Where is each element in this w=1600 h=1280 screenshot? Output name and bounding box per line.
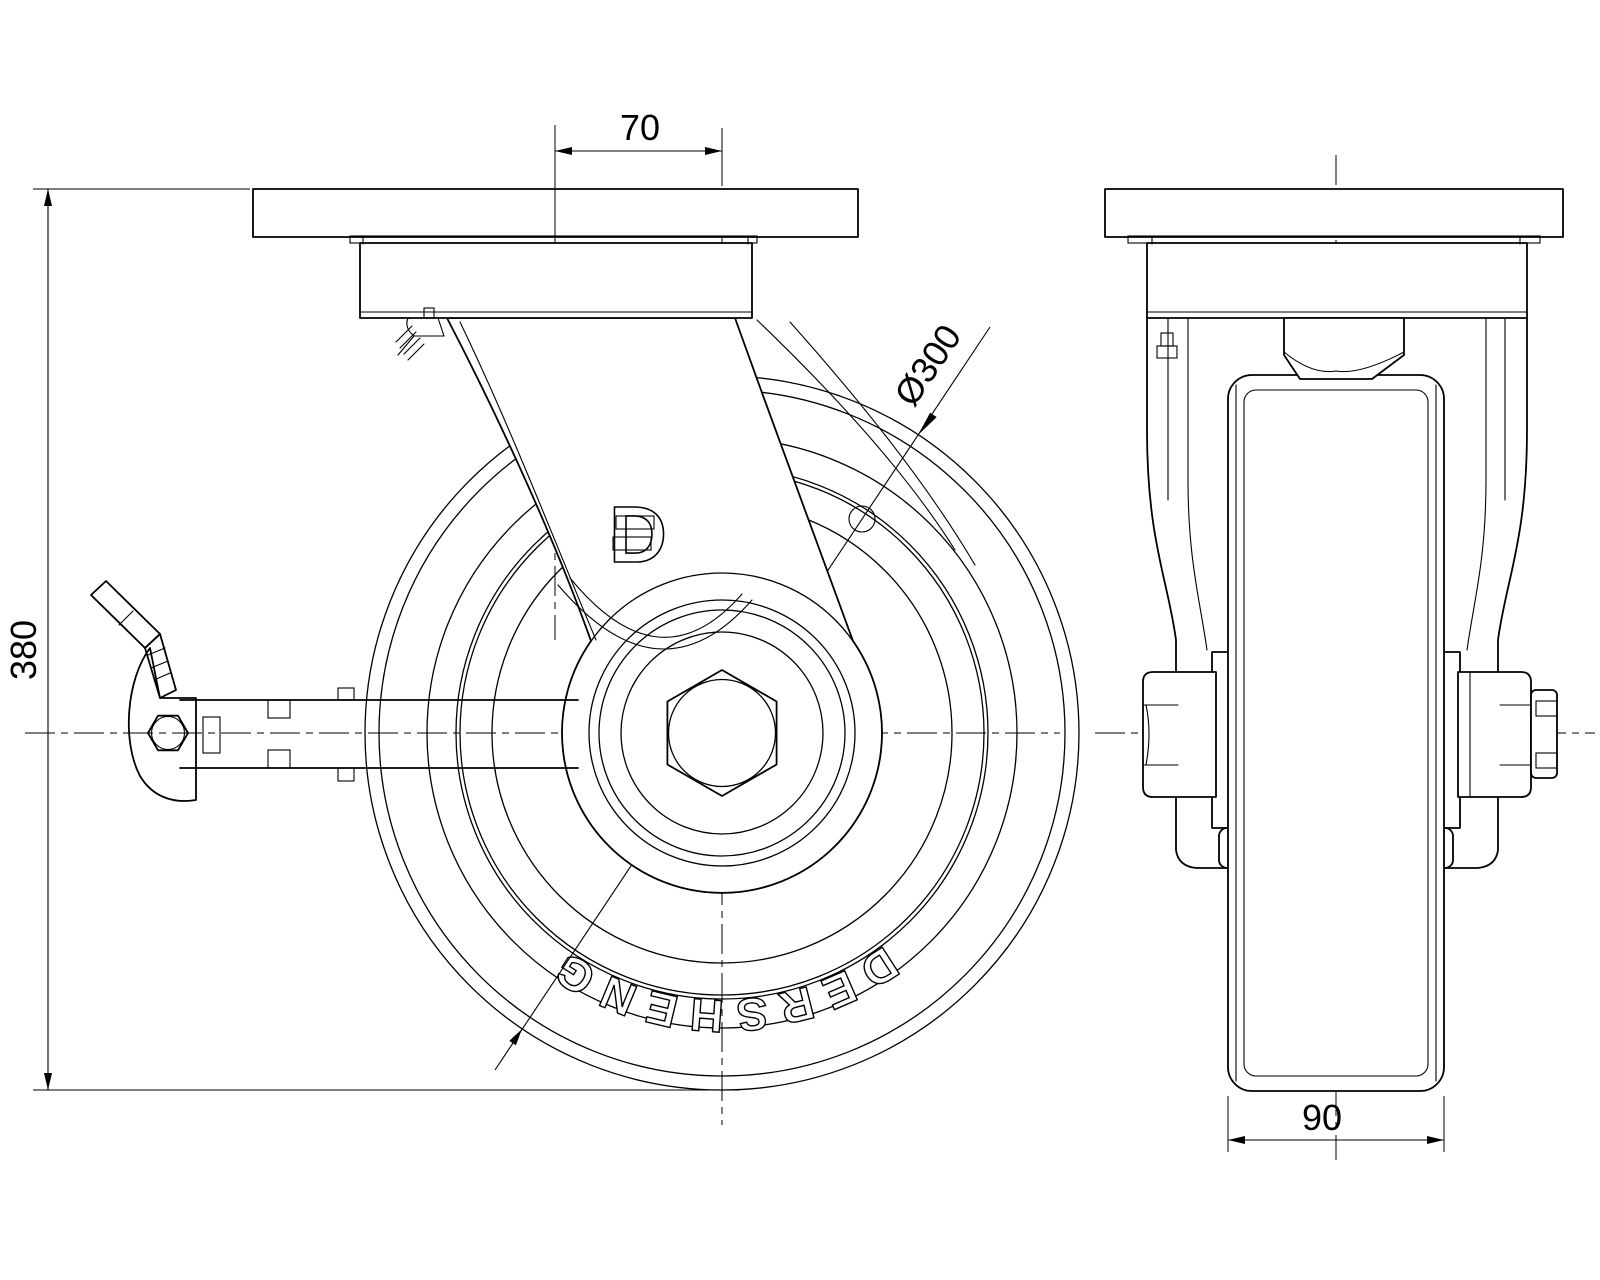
width-dimension-label: 90 xyxy=(1302,1097,1342,1138)
arrow-90-right xyxy=(1427,1136,1444,1144)
front-view-mounting xyxy=(1105,189,1563,379)
grease-fitting-hatch xyxy=(396,326,424,360)
arrow-70-right xyxy=(705,147,722,155)
fork-blade: D xyxy=(447,318,882,893)
brake-arm-step-bottom xyxy=(268,750,290,768)
arrow-380-top xyxy=(44,189,52,206)
brake-arm-step-top xyxy=(268,700,290,718)
axle-bolt-head xyxy=(1143,672,1216,797)
brake-shoe-tab-top xyxy=(338,688,354,700)
front-right-leg-line-2 xyxy=(1467,318,1486,650)
brake-handle-joint-line xyxy=(119,611,133,625)
castle-nut-body xyxy=(1458,672,1531,797)
diameter-arrow-upper xyxy=(918,413,937,435)
offset-dimension-label: 70 xyxy=(620,107,660,148)
height-dimension-label: 380 xyxy=(3,620,44,680)
front-view: 90 xyxy=(1105,189,1563,1152)
fork-blade-outline xyxy=(447,318,882,893)
kingpin-hex-nut xyxy=(1284,318,1404,379)
brake-arm-slot xyxy=(203,717,220,753)
swivel-head-housing xyxy=(360,243,752,318)
front-top-plate xyxy=(1105,189,1563,237)
caster-technical-drawing: DERSHENG Ø300 D xyxy=(0,0,1600,1280)
front-swivel-head xyxy=(1147,243,1527,318)
wheel-diameter-label: Ø300 xyxy=(886,317,969,413)
diameter-arrow-lower xyxy=(509,1029,522,1045)
fork-logo: D xyxy=(609,490,667,579)
arrow-70-left xyxy=(555,147,572,155)
side-view: DERSHENG Ø300 D xyxy=(3,107,1079,1090)
arrow-380-bottom xyxy=(44,1073,52,1090)
arrow-90-left xyxy=(1228,1136,1245,1144)
brake-handle-bar xyxy=(91,581,160,648)
brake-assembly xyxy=(91,581,578,801)
front-left-leg-line-2 xyxy=(1188,318,1207,650)
brake-handle-bend xyxy=(145,634,176,698)
front-grease-fitting-tip xyxy=(1161,333,1173,346)
grease-fitting-body xyxy=(407,318,444,336)
front-view-wheel xyxy=(1228,375,1444,1091)
brake-pivot-bracket xyxy=(129,648,196,801)
wheel-tread-front xyxy=(1228,375,1444,1091)
drawing-canvas: DERSHENG Ø300 D xyxy=(0,0,1600,1280)
axle-thread-tip xyxy=(1531,690,1557,778)
front-grease-fitting-body xyxy=(1157,346,1177,358)
brake-shoe-tab-bottom xyxy=(338,768,354,781)
